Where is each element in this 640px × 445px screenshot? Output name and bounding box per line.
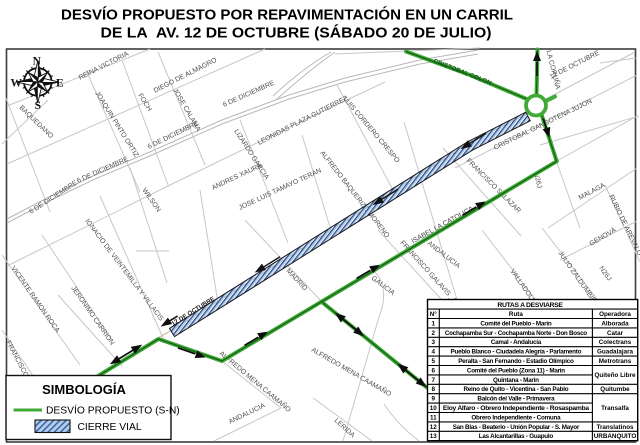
- svg-text:Pueblo Blanco - Ciudadela Aleg: Pueblo Blanco - Ciudadela Alegría - Parl…: [451, 349, 582, 356]
- svg-text:RUTAS A DESVIARSE: RUTAS A DESVIARSE: [497, 302, 563, 309]
- svg-text:1: 1: [432, 320, 436, 327]
- svg-text:S: S: [35, 100, 41, 112]
- svg-text:7: 7: [432, 377, 436, 384]
- svg-text:9: 9: [432, 396, 436, 403]
- svg-text:Eloy Alfaro - Obrero Independi: Eloy Alfaro - Obrero Independiente - Ros…: [443, 405, 590, 412]
- svg-text:Quitumbe: Quitumbe: [600, 386, 630, 393]
- svg-text:5: 5: [432, 358, 436, 365]
- svg-text:11: 11: [430, 414, 437, 421]
- svg-text:Comité del Pueblo - Marin: Comité del Pueblo - Marin: [480, 320, 551, 327]
- svg-text:10: 10: [430, 405, 438, 412]
- svg-text:DESVÍO PROPUESTO (S-N): DESVÍO PROPUESTO (S-N): [46, 404, 180, 417]
- svg-text:3: 3: [432, 339, 436, 346]
- svg-text:4: 4: [432, 349, 436, 356]
- svg-text:6: 6: [432, 367, 436, 374]
- svg-text:Peralta - San Fernando - Estad: Peralta - San Fernando - Estadio Olímpic…: [458, 358, 574, 365]
- svg-text:Operadora: Operadora: [599, 311, 631, 318]
- svg-text:Quintana - Marin: Quintana - Marin: [493, 377, 539, 384]
- svg-text:Las Alcantarillas - Guapulo: Las Alcantarillas - Guapulo: [479, 433, 554, 440]
- svg-text:E: E: [56, 78, 64, 90]
- svg-text:N: N: [33, 56, 42, 68]
- svg-text:W: W: [11, 78, 23, 90]
- svg-text:Comité del Pueblo (Zona 11) -: Comité del Pueblo (Zona 11) - Marin: [467, 367, 565, 374]
- svg-text:Translatinos: Translatinos: [596, 424, 634, 431]
- svg-text:Balcón del Valle - Primavera: Balcón del Valle - Primavera: [477, 396, 555, 403]
- svg-text:Catar: Catar: [607, 330, 624, 337]
- svg-text:Cochapamba Sur - Cochapamba No: Cochapamba Sur - Cochapamba Norte - Don …: [445, 330, 587, 337]
- svg-text:CIERRE VIAL: CIERRE VIAL: [78, 422, 142, 433]
- svg-text:DE LA AV. 12 DE OCTUBRE (SÁBA: DE LA AV. 12 DE OCTUBRE (SÁBADO 20 DE JU…: [101, 25, 492, 42]
- svg-text:Obrero Independiente - Comuna: Obrero Independiente - Comuna: [471, 414, 561, 421]
- svg-text:Alborada: Alborada: [601, 320, 629, 327]
- svg-text:Reino de Quito - Vicentina - S: Reino de Quito - Vicentina - San Pablo: [464, 386, 569, 393]
- svg-text:Guadalajara: Guadalajara: [597, 349, 634, 356]
- svg-text:Camal - Andalucía: Camal - Andalucía: [491, 339, 542, 346]
- svg-text:URBANQUITO: URBANQUITO: [594, 433, 637, 440]
- svg-text:Metrotrans: Metrotrans: [599, 358, 632, 365]
- svg-text:8: 8: [432, 386, 436, 393]
- svg-text:SIMBOLOGÍA: SIMBOLOGÍA: [42, 382, 126, 397]
- svg-text:Quiteño Libre: Quiteño Libre: [595, 372, 636, 379]
- svg-text:DESVÍO PROPUESTO POR REPAVIMEN: DESVÍO PROPUESTO POR REPAVIMENTACIÓN EN …: [61, 6, 513, 24]
- svg-text:Ruta: Ruta: [509, 311, 523, 318]
- svg-text:N°: N°: [430, 310, 438, 318]
- svg-text:2: 2: [432, 330, 436, 337]
- svg-text:13: 13: [430, 433, 438, 440]
- svg-text:San Blas - Beaterio - Unión Po: San Blas - Beaterio - Unión Popular - S.…: [453, 424, 580, 431]
- svg-text:Transalfa: Transalfa: [601, 405, 629, 412]
- svg-text:Colectrans: Colectrans: [599, 339, 632, 346]
- svg-text:12: 12: [430, 424, 438, 431]
